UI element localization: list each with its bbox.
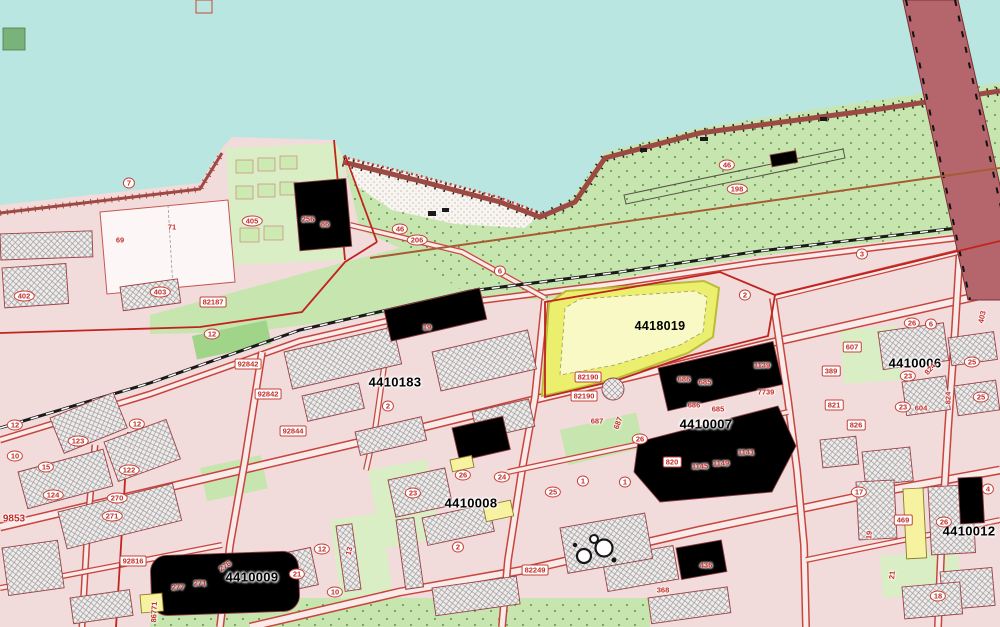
parcel-number-label: 402 bbox=[14, 291, 35, 302]
parcel-number-label: 46 bbox=[392, 224, 408, 235]
road-id-label: 821 bbox=[825, 400, 844, 411]
parcel-number-label: 7 bbox=[123, 178, 135, 189]
parcel-number-label: 685 bbox=[712, 405, 725, 414]
parcel-number-label: 405 bbox=[242, 216, 263, 227]
parcel-number-label: 687 bbox=[591, 417, 604, 426]
quarter-label: 4410007 bbox=[680, 417, 733, 432]
parcel-number-label: 256 bbox=[302, 215, 315, 224]
map-canvas[interactable]: 4410183441000744100084410009441000644100… bbox=[0, 0, 1000, 627]
road-id-label: 82187 bbox=[200, 297, 227, 308]
road-id-label: 92844 bbox=[280, 426, 307, 437]
parcel-number-label: 23 bbox=[405, 488, 421, 499]
parcel-number-label: 23 bbox=[900, 371, 916, 382]
parcel-number-label: 12 bbox=[314, 544, 330, 555]
parcel-number-label: 9853 bbox=[3, 514, 25, 525]
parcel-number-label: 7739 bbox=[758, 388, 775, 397]
parcel-number-label: 685 bbox=[699, 378, 712, 387]
parcel-number-label: 123 bbox=[68, 436, 89, 447]
map-labels-layer: 4410183441000744100084410009441000644100… bbox=[0, 0, 1000, 627]
parcel-number-label: 1141 bbox=[738, 448, 754, 457]
parcel-number-label: 18 bbox=[930, 591, 946, 602]
road-id-label: 82190 bbox=[571, 391, 598, 402]
parcel-number-label: 13 bbox=[344, 546, 355, 556]
parcel-number-label: 271 bbox=[194, 579, 207, 588]
parcel-number-label: 46 bbox=[719, 160, 735, 171]
parcel-number-label: 86 bbox=[321, 220, 329, 229]
quarter-label: 4410012 bbox=[943, 524, 996, 539]
parcel-number-label: 403 bbox=[976, 310, 987, 324]
quarter-label: 4410009 bbox=[226, 570, 279, 585]
parcel-number-label: 69 bbox=[116, 236, 124, 245]
road-id-label: 469 bbox=[894, 515, 913, 526]
parcel-number-label: 687 bbox=[612, 416, 625, 431]
parcel-number-label: 122 bbox=[119, 465, 140, 476]
parcel-number-label: 26 bbox=[904, 318, 920, 329]
parcel-number-label: 12 bbox=[7, 420, 23, 431]
road-id-label: 82190 bbox=[575, 372, 602, 383]
road-id-label: 82249 bbox=[522, 565, 549, 576]
parcel-number-label: 1145 bbox=[692, 462, 708, 471]
parcel-number-label: 4 bbox=[982, 484, 994, 495]
highlighted-parcel-label[interactable]: 4418019 bbox=[635, 319, 686, 333]
parcel-number-label: 71 bbox=[168, 223, 176, 232]
road-id-label: 826 bbox=[847, 420, 866, 431]
parcel-number-label: 25 bbox=[973, 392, 989, 403]
parcel-number-label: 6 bbox=[494, 266, 506, 277]
parcel-number-label: 206 bbox=[407, 235, 428, 246]
parcel-number-label: 1149 bbox=[713, 459, 729, 468]
parcel-number-label: 12 bbox=[204, 329, 220, 340]
quarter-label: 4410008 bbox=[445, 496, 498, 511]
road-id-label: 607 bbox=[843, 342, 862, 353]
parcel-number-label: 1 bbox=[577, 476, 589, 487]
road-id-label: 92842 bbox=[235, 359, 262, 370]
road-id-label: 820 bbox=[663, 457, 682, 468]
parcel-number-label: 436 bbox=[700, 561, 713, 570]
parcel-number-label: 10 bbox=[327, 587, 343, 598]
parcel-number-label: 25 bbox=[545, 487, 561, 498]
parcel-number-label: 12 bbox=[129, 419, 145, 430]
parcel-number-label: 686 bbox=[688, 401, 701, 410]
road-id-label: 389 bbox=[822, 366, 841, 377]
parcel-number-label: 277 bbox=[172, 583, 185, 592]
quarter-label: 4410183 bbox=[369, 375, 422, 390]
parcel-number-label: 15 bbox=[38, 462, 54, 473]
parcel-number-label: 86771 bbox=[149, 601, 159, 622]
parcel-number-label: 21 bbox=[289, 569, 305, 580]
parcel-number-label: 2 bbox=[739, 290, 751, 301]
parcel-number-label: 6 bbox=[925, 319, 937, 330]
road-id-label: 92816 bbox=[120, 556, 147, 567]
parcel-number-label: 1 bbox=[619, 477, 631, 488]
parcel-number-label: 24 bbox=[494, 472, 510, 483]
parcel-number-label: 17 bbox=[851, 487, 867, 498]
parcel-number-label: 19 bbox=[423, 323, 431, 332]
parcel-number-label: 198 bbox=[727, 184, 748, 195]
parcel-number-label: 23 bbox=[895, 402, 911, 413]
parcel-number-label: 2 bbox=[452, 542, 464, 553]
parcel-number-label: 10 bbox=[7, 451, 23, 462]
parcel-number-label: 271 bbox=[102, 511, 123, 522]
parcel-number-label: 824 bbox=[944, 392, 953, 405]
road-id-label: 92842 bbox=[255, 389, 282, 400]
parcel-number-label: 368 bbox=[657, 586, 670, 595]
parcel-number-label: 21 bbox=[887, 570, 897, 579]
parcel-number-label: 270 bbox=[107, 493, 128, 504]
parcel-number-label: 124 bbox=[43, 490, 64, 501]
parcel-number-label: 2 bbox=[382, 401, 394, 412]
parcel-number-label: 26 bbox=[632, 434, 648, 445]
parcel-number-label: 26 bbox=[455, 470, 471, 481]
parcel-number-label: 686 bbox=[678, 375, 691, 384]
parcel-number-label: 604 bbox=[915, 404, 928, 413]
parcel-number-label: 1139 bbox=[754, 361, 770, 370]
parcel-number-label: 19 bbox=[864, 530, 874, 539]
parcel-number-label: 25 bbox=[964, 357, 980, 368]
parcel-number-label: 3 bbox=[856, 249, 868, 260]
parcel-number-label: 403 bbox=[150, 287, 171, 298]
